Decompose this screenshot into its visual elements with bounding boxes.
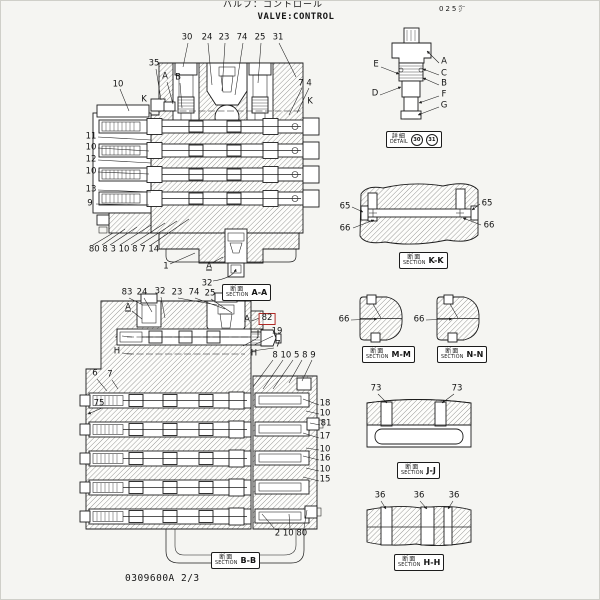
document-number: 0309600A 2/3 <box>125 573 200 584</box>
valve-engineering-drawing <box>1 1 600 600</box>
assembly-bb <box>80 293 323 563</box>
section-nn-drawing <box>426 295 479 342</box>
detail-drawing <box>380 28 439 119</box>
catalog-page: バルブ：コントロール VALVE:CONTROL 025㌻ <box>0 0 600 600</box>
section-jj-drawing <box>367 394 471 447</box>
section-kk-drawing <box>352 184 481 244</box>
section-hh-drawing <box>367 501 471 546</box>
assembly-aa <box>93 43 319 281</box>
section-mm-drawing <box>351 295 402 342</box>
